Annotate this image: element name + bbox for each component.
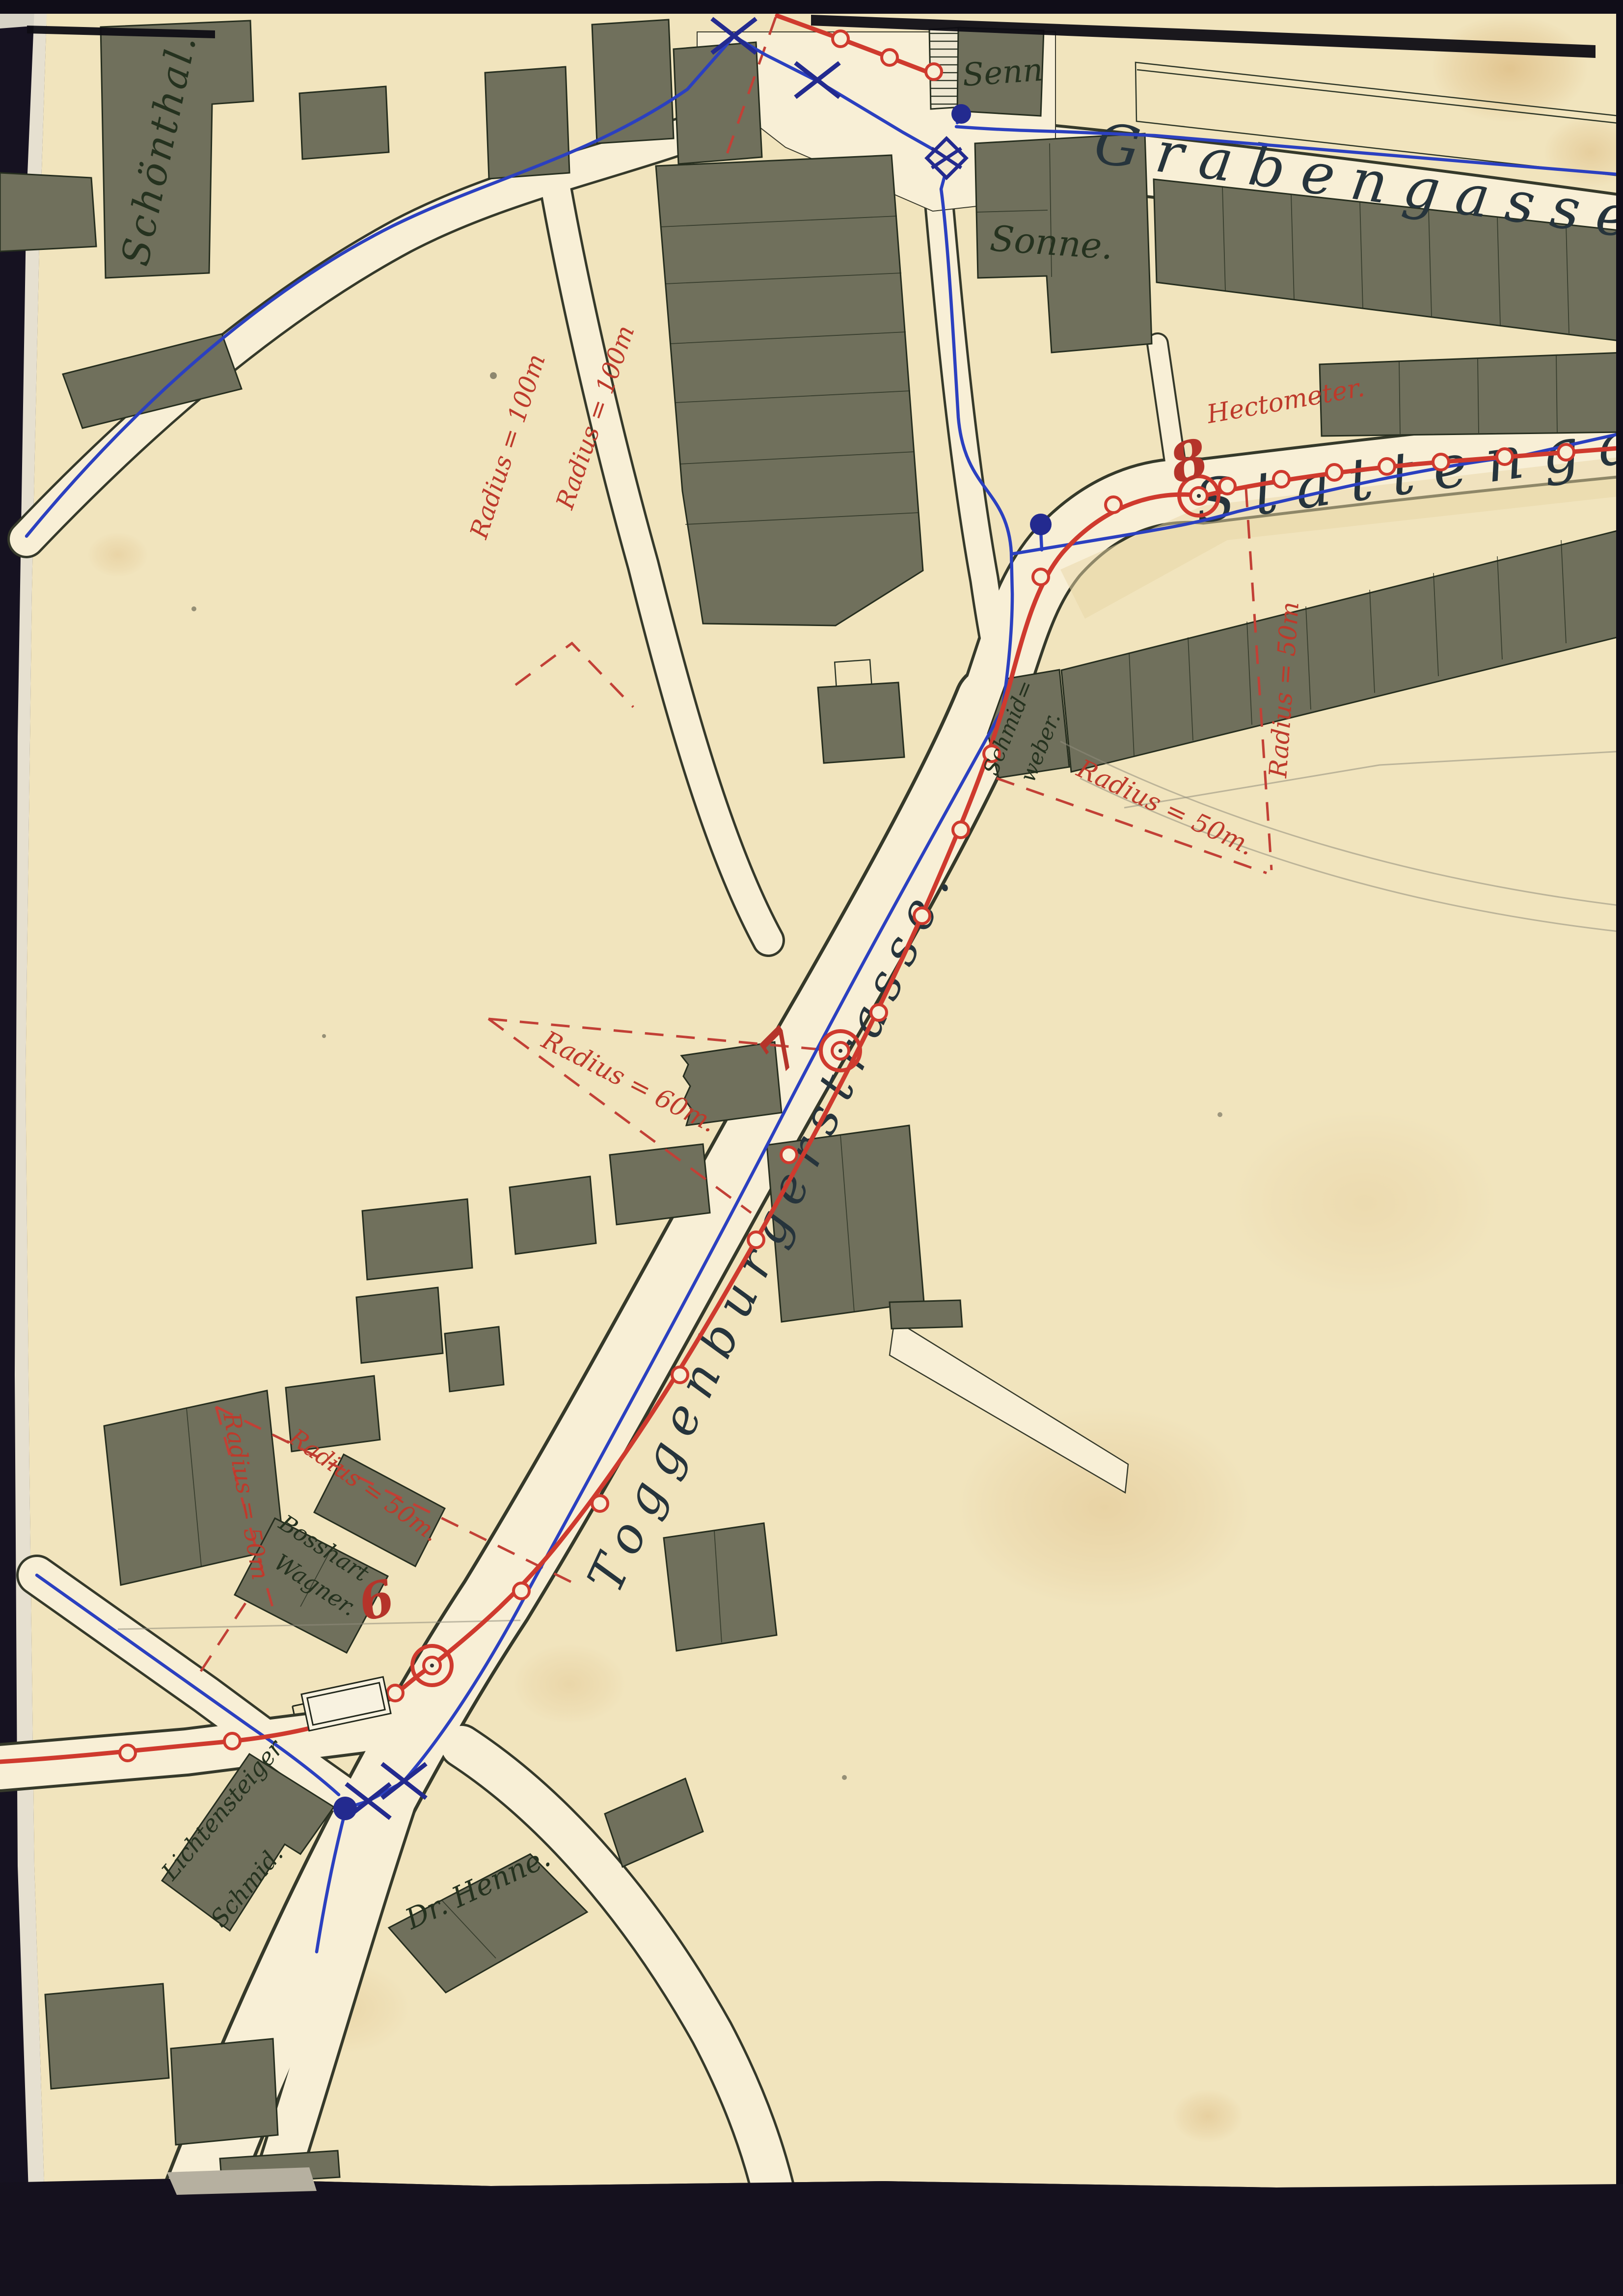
building xyxy=(362,1199,472,1280)
building xyxy=(510,1176,596,1254)
building-block-subdivided xyxy=(656,155,923,626)
place-label-senn: Senn xyxy=(961,52,1044,94)
building xyxy=(592,20,674,143)
building xyxy=(45,1984,169,2089)
hydrant-dot xyxy=(951,104,971,124)
building xyxy=(674,42,762,164)
building xyxy=(299,86,389,159)
map-canvas: Grabengasse Stattengasse Toggenburgerstr… xyxy=(0,0,1623,2296)
building xyxy=(610,1144,710,1225)
place-label-sonne: Sonne. xyxy=(989,218,1114,267)
building xyxy=(171,2039,278,2145)
building xyxy=(664,1523,777,1651)
scanned-map-page: Grabengasse Stattengasse Toggenburgerstr… xyxy=(0,0,1623,2296)
building xyxy=(356,1287,443,1363)
building xyxy=(890,1300,962,1329)
building xyxy=(445,1327,504,1392)
hydrant-dot xyxy=(1030,514,1052,535)
building xyxy=(485,67,569,179)
building xyxy=(818,683,904,763)
building xyxy=(0,173,96,251)
